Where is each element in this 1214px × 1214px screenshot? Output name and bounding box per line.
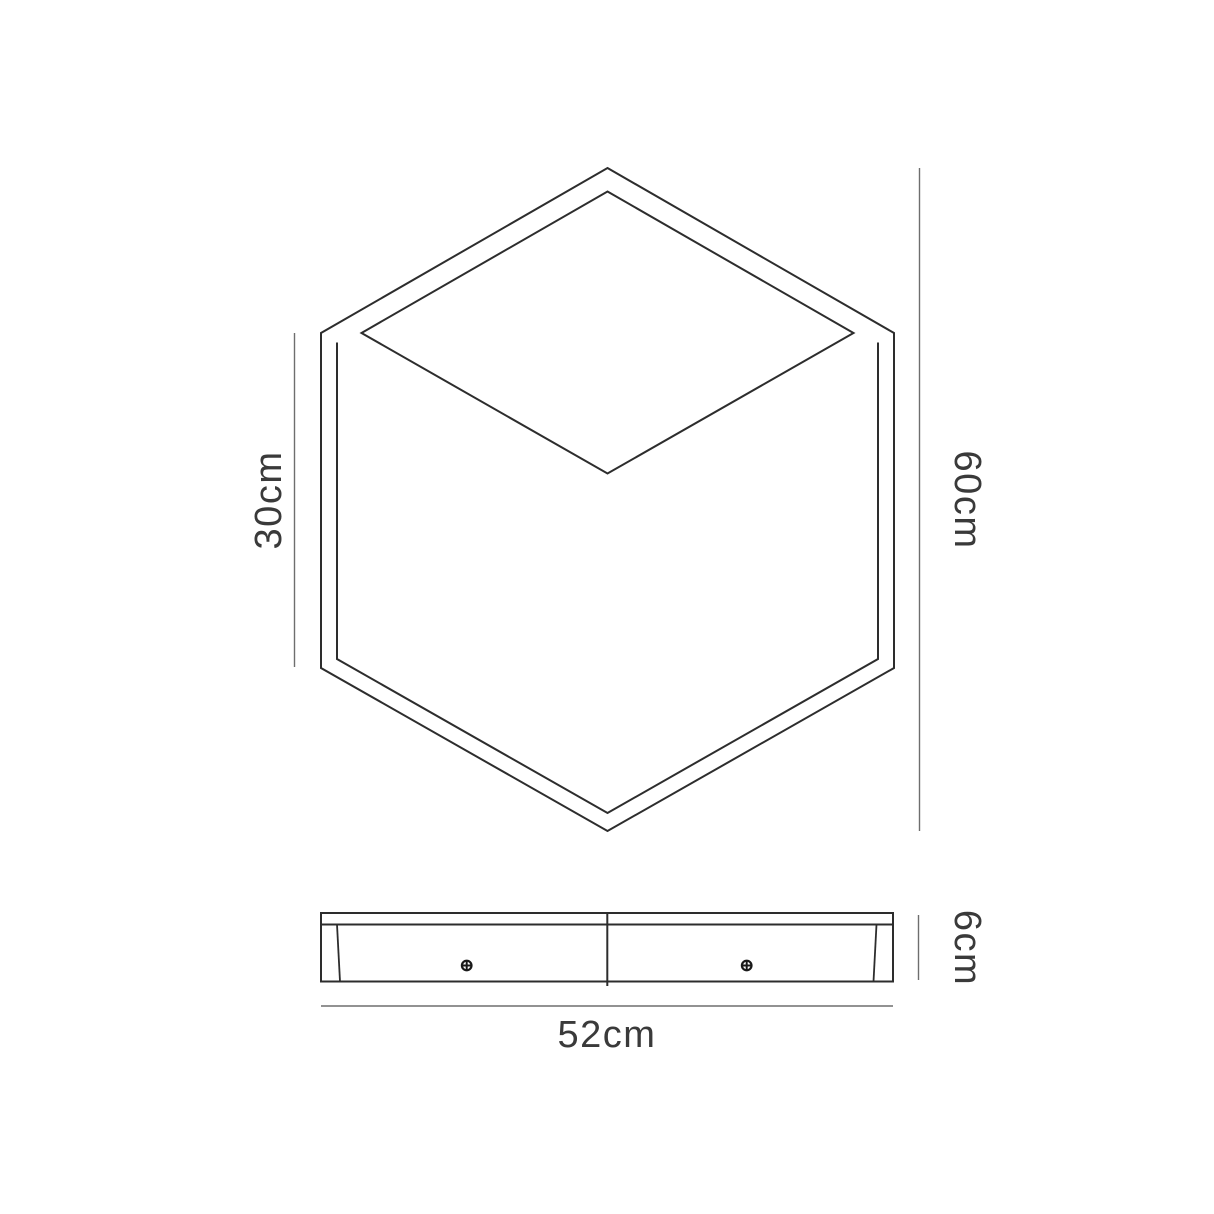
diagram-canvas: 30cm 60cm [0, 0, 1214, 1214]
side-view-right-inner-edge [874, 925, 877, 982]
dimension-label-52cm: 52cm [558, 1014, 657, 1056]
dimension-label-60cm: 60cm [946, 451, 988, 550]
screw-icon [742, 961, 752, 971]
dimension-30cm: 30cm [248, 333, 295, 667]
cube-front-face-inner-frame [337, 343, 878, 814]
cube-top-face-inner-frame [362, 192, 854, 474]
dimension-6cm: 6cm [919, 910, 989, 986]
dimension-label-30cm: 30cm [248, 451, 290, 550]
front-view [321, 168, 894, 831]
cube-outer-outline [321, 168, 894, 831]
dimension-60cm: 60cm [920, 168, 989, 831]
dimension-diagram: 30cm 60cm [0, 0, 1214, 1214]
screw-icon [462, 961, 472, 971]
side-view-left-inner-edge [337, 925, 340, 982]
dimension-label-6cm: 6cm [946, 910, 988, 986]
dimension-52cm: 52cm [321, 1006, 893, 1056]
side-view [321, 913, 893, 986]
